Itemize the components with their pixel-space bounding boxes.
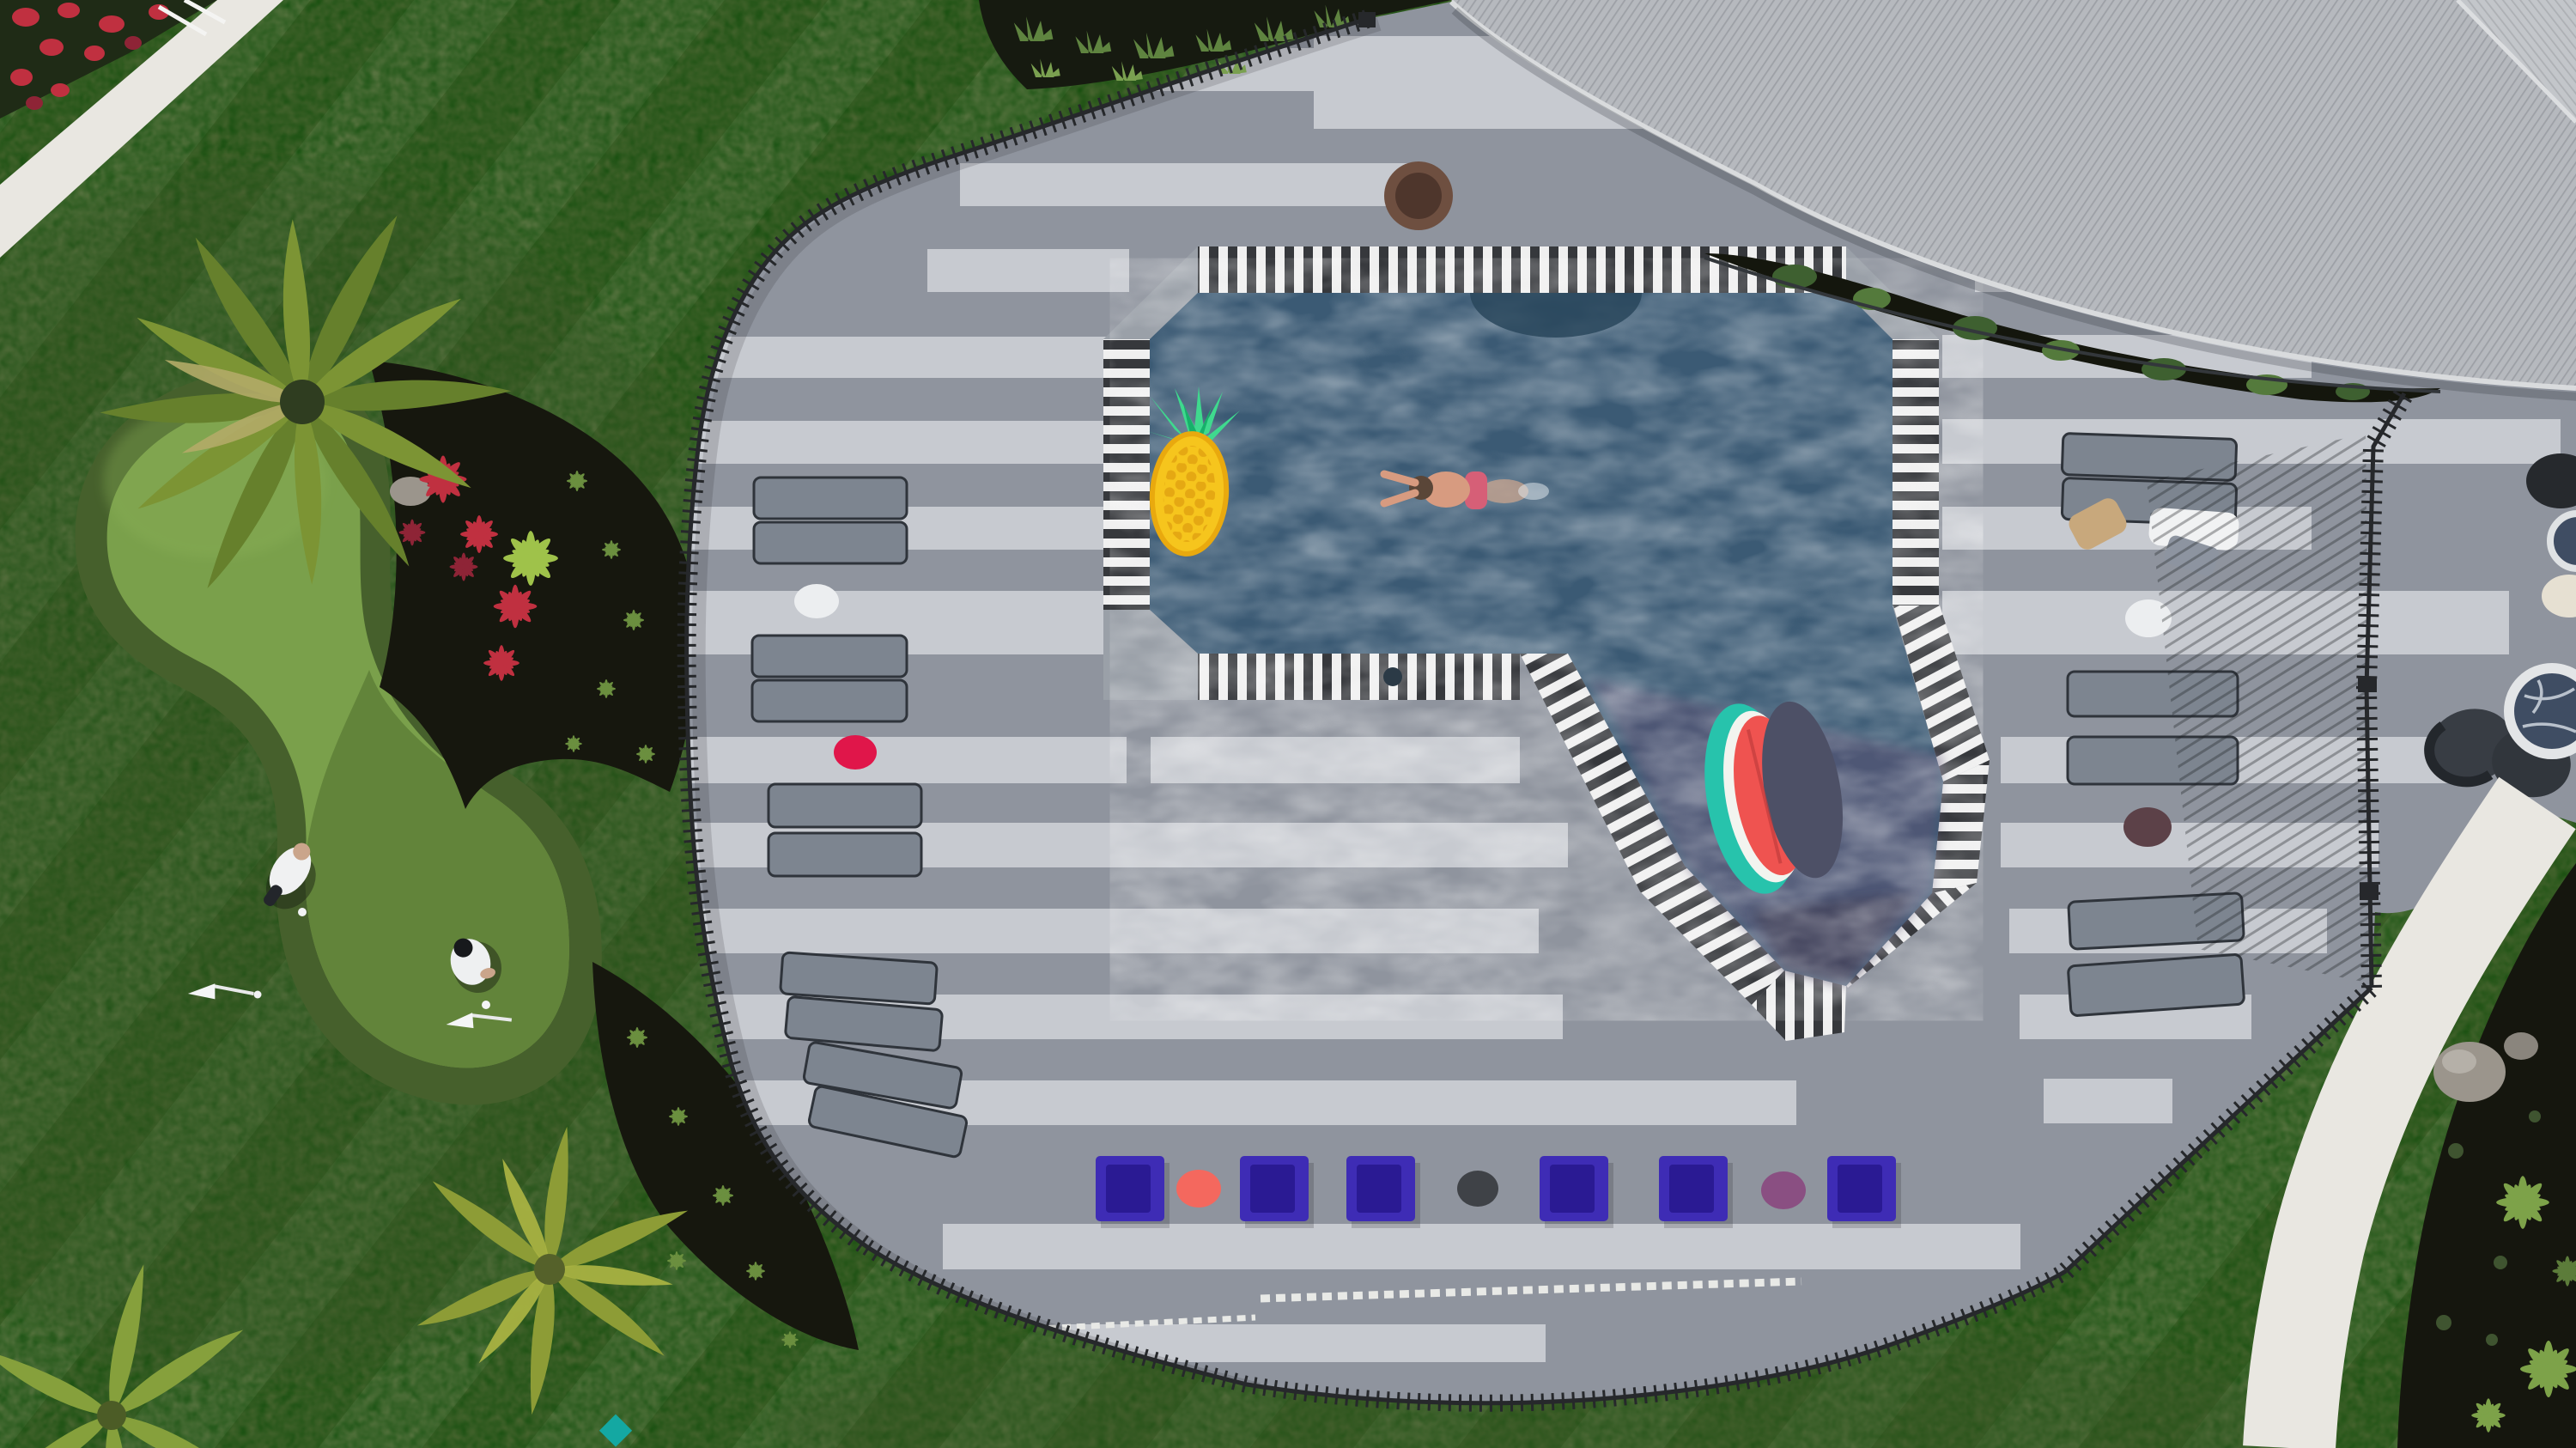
golf-ball — [254, 991, 262, 999]
golf-ball — [298, 908, 307, 916]
cube-seat — [1250, 1165, 1295, 1213]
lounger — [754, 522, 907, 563]
rock-highlight — [2442, 1049, 2476, 1074]
splash — [1518, 483, 1549, 500]
fire-pit — [1384, 161, 1453, 230]
marble-side-table — [2550, 514, 2576, 569]
golf-ball — [482, 1001, 490, 1009]
fence-post — [2360, 885, 2379, 900]
pool-drain — [1383, 667, 1402, 686]
cube-seat — [1669, 1165, 1714, 1213]
marble-table — [2509, 668, 2576, 754]
lounger — [2068, 954, 2245, 1016]
ottoman-coral — [1176, 1170, 1221, 1208]
fence-post — [1358, 12, 1376, 27]
ottoman-mauve — [1761, 1171, 1806, 1209]
lounger — [769, 833, 921, 876]
ottoman-red — [834, 735, 877, 770]
aerial-photo — [0, 0, 2576, 1448]
lounger — [752, 636, 907, 677]
lounger — [754, 478, 907, 519]
ottoman-maroon — [2123, 807, 2172, 847]
lounger — [752, 680, 907, 721]
rock-small — [2504, 1032, 2538, 1060]
pool-border-left — [1103, 339, 1150, 610]
green-bromeliad — [503, 531, 558, 586]
pool-border-top — [1198, 246, 1846, 293]
pool-border-bottom — [1198, 654, 1520, 700]
rock — [2433, 1042, 2506, 1102]
ottoman-white — [794, 584, 839, 618]
lounger — [769, 784, 921, 827]
fence-post — [2358, 677, 2377, 692]
ottoman-dark — [1457, 1171, 1498, 1207]
pool-border-right — [1893, 339, 1939, 605]
cube-seat — [1357, 1165, 1401, 1213]
cube-seat — [1106, 1165, 1151, 1213]
cube-seat — [1550, 1165, 1595, 1213]
cube-seat — [1838, 1165, 1882, 1213]
aerial-photo-stage — [0, 0, 2576, 1448]
